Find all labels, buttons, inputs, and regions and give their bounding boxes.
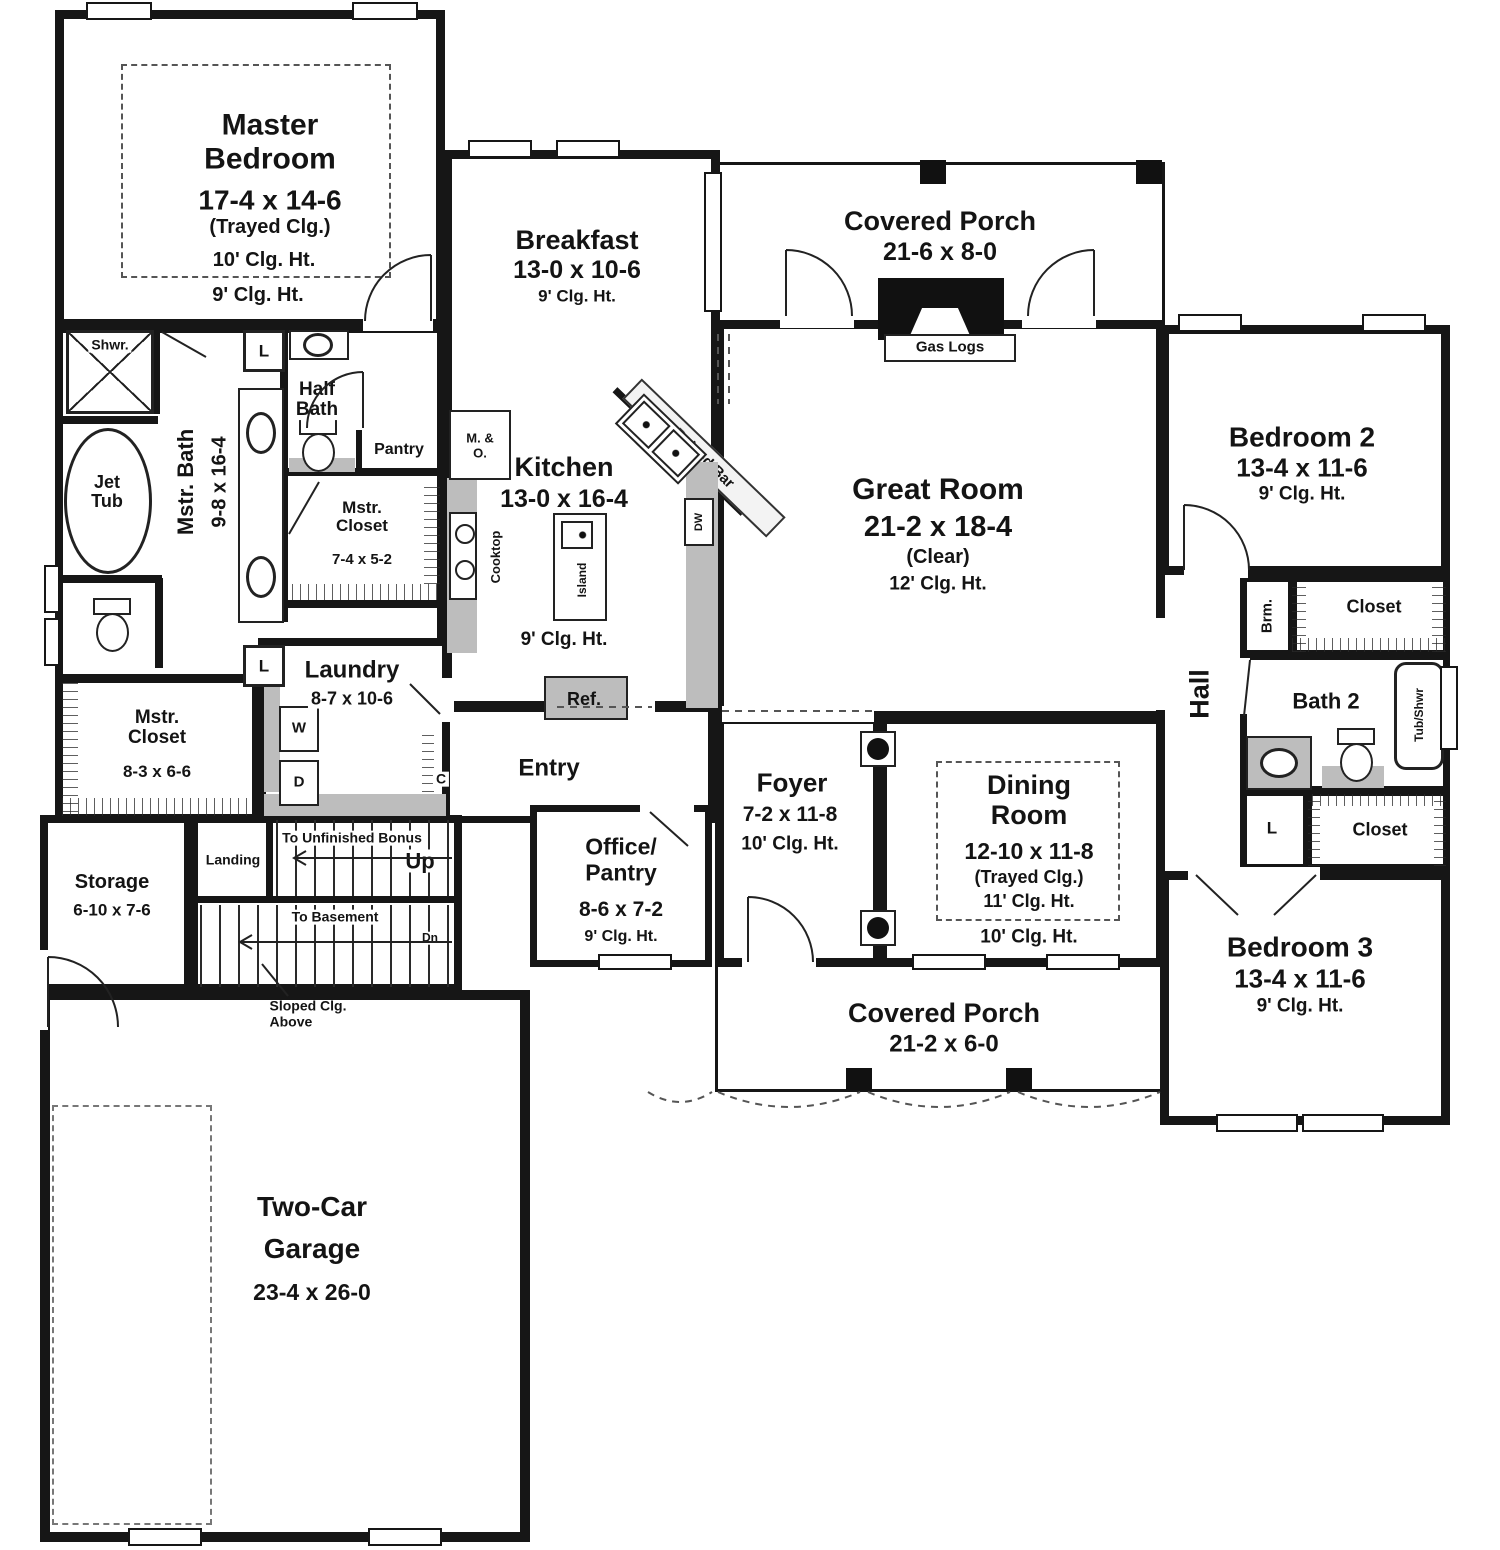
label-cooktop: Cooktop	[486, 531, 506, 584]
window	[556, 140, 620, 158]
window	[352, 2, 418, 20]
gap-office-door	[640, 800, 694, 814]
label-bed3-dims: 13-4 x 11-6	[1234, 964, 1366, 993]
window	[1302, 1114, 1384, 1132]
label-broom: Brm.	[1259, 599, 1276, 633]
label-great-name: Great Room	[852, 473, 1024, 507]
label-storage-name: Storage	[75, 871, 149, 893]
wall-pantry-left	[356, 426, 362, 474]
toilet-bowl	[1340, 743, 1373, 782]
label-master-dims: 17-4 x 14-6	[198, 184, 341, 215]
label-bed3-clg: 9' Clg. Ht.	[1257, 995, 1344, 1016]
column-dot	[867, 917, 889, 939]
gap-halfbath-door	[355, 370, 369, 430]
label-bed2-dims: 13-4 x 11-6	[1236, 453, 1368, 482]
hatch-closet-large-bottom	[62, 798, 254, 816]
window	[86, 2, 152, 20]
label-foyer-clg: 10' Clg. Ht.	[741, 833, 838, 854]
gap-bed3-door	[1188, 867, 1320, 881]
gap-bath2-door	[1236, 658, 1250, 714]
label-dining-tray: (Trayed Clg.)	[974, 867, 1083, 887]
toilet-bowl	[96, 613, 129, 652]
gap-porch-door-left	[780, 314, 854, 328]
label-dining-dims: 12-10 x 11-8	[964, 839, 1093, 865]
halfbath-toilet	[298, 418, 338, 472]
porch-scallop-1	[718, 1092, 860, 1107]
porch-post	[1006, 1068, 1032, 1090]
label-breakfast-dims: 13-0 x 10-6	[513, 256, 641, 284]
label-garage-dims: 23-4 x 26-0	[253, 1280, 371, 1306]
window	[128, 1528, 202, 1546]
label-closet-large-dims: 8-3 x 6-6	[120, 763, 194, 781]
label-master-bath-name: Mstr. Bath	[173, 429, 199, 535]
label-porch-front-name: Covered Porch	[848, 998, 1040, 1028]
label-dining-name: Dining Room	[987, 770, 1071, 830]
wall-closet-small-bottom	[285, 600, 445, 608]
label-jet-tub: Jet Tub	[88, 473, 126, 511]
label-porch-rear-dims: 21-6 x 8-0	[883, 238, 997, 266]
label-half-bath: Half Bath	[293, 380, 341, 420]
label-micro-oven: M. & O.	[466, 431, 493, 460]
gap-foyer-great	[722, 706, 874, 722]
porch-post	[920, 160, 946, 184]
label-sloped-clg: Sloped Clg. Above	[270, 998, 347, 1029]
window	[44, 618, 60, 666]
label-porch-rear-name: Covered Porch	[844, 206, 1036, 236]
label-closet-b2: Closet	[1343, 598, 1404, 617]
label-entry: Entry	[518, 756, 579, 783]
label-bath2: Bath 2	[1289, 689, 1362, 712]
window	[1216, 1114, 1298, 1132]
label-washer: W	[292, 721, 306, 738]
hatch-closet-b3-right	[1434, 796, 1446, 866]
label-foyer-dims: 7-2 x 11-8	[743, 803, 838, 827]
label-bed2-clg: 9' Clg. Ht.	[1259, 483, 1346, 504]
porch-front	[715, 965, 1165, 1092]
bath2-sink	[1260, 748, 1298, 778]
label-master-clg: 9' Clg. Ht.	[212, 284, 303, 306]
master-sink-2	[246, 556, 276, 598]
label-laundry-name: Laundry	[302, 657, 403, 682]
label-shower: Shwr.	[88, 338, 131, 353]
gap-storage-door	[34, 950, 48, 1030]
window	[1440, 666, 1458, 750]
label-bed3-name: Bedroom 3	[1227, 931, 1373, 962]
label-great-clg: 12' Clg. Ht.	[889, 573, 986, 594]
garage-bay-outline	[52, 1105, 212, 1525]
hatch-closet-large-left	[62, 682, 78, 812]
wall-wc-right	[155, 578, 163, 668]
label-porch-front-dims: 21-2 x 6-0	[889, 1032, 998, 1059]
gap-master-door	[363, 317, 433, 331]
window	[1362, 314, 1426, 332]
master-sink-1	[246, 412, 276, 454]
window	[368, 1528, 442, 1546]
label-office-clg: 9' Clg. Ht.	[584, 928, 657, 946]
label-landing: Landing	[203, 853, 263, 868]
label-great-dims: 21-2 x 18-4	[864, 511, 1012, 543]
wall-landing-divider	[266, 818, 273, 898]
bath2-toilet	[1336, 728, 1376, 782]
label-laundry-dims: 8-7 x 10-6	[308, 690, 396, 709]
master-toilet	[92, 598, 132, 652]
porch-scallop-2	[868, 1092, 1010, 1107]
window	[704, 172, 722, 312]
label-to-bonus: To Unfinished Bonus	[279, 831, 425, 846]
porch-post	[1136, 160, 1162, 184]
hatch-closet-b2-bottom	[1292, 638, 1446, 652]
floor-plan: Raised Bar Master Bedroom 17-4 x 14-6 (T…	[0, 0, 1500, 1550]
column-foyer-top	[860, 731, 896, 767]
label-breakfast-clg: 9' Clg. Ht.	[538, 286, 616, 305]
label-master-bath-dims: 9-8 x 16-4	[209, 436, 232, 527]
label-storage-dims: 6-10 x 7-6	[73, 900, 151, 919]
hatch-closet-small-right	[424, 480, 440, 584]
label-up: Up	[402, 849, 437, 872]
window	[912, 954, 986, 970]
gap-front-door	[742, 952, 816, 968]
gap-laundry-door	[442, 678, 454, 722]
porch-post	[846, 1068, 872, 1090]
halfbath-sink	[303, 333, 333, 357]
label-linen-bottom: L	[259, 656, 269, 675]
label-dishwasher: DW	[693, 513, 705, 531]
label-breakfast-name: Breakfast	[515, 225, 638, 255]
cooktop-burner-1	[455, 524, 475, 544]
label-gas-logs: Gas Logs	[916, 340, 984, 357]
label-to-basement: To Basement	[289, 910, 382, 925]
column-foyer-bottom	[860, 910, 896, 946]
label-closet-b3: Closet	[1349, 821, 1410, 840]
label-refrigerator: Ref.	[567, 689, 601, 709]
label-kitchen-name: Kitchen	[511, 453, 616, 481]
label-garage-name: Two-Car Garage	[257, 1186, 367, 1270]
hatch-closet-small-bottom	[292, 584, 438, 600]
label-down: Dn	[419, 932, 441, 945]
label-master-name: Master Bedroom	[204, 108, 336, 175]
toilet-bowl	[302, 433, 335, 472]
gap-porch-door-right	[1022, 314, 1096, 328]
label-coat-closet: C	[433, 772, 449, 787]
window	[468, 140, 532, 158]
label-master-tray: (Trayed Clg.)	[209, 216, 330, 238]
wall-wc-top	[62, 575, 162, 583]
window	[1046, 954, 1120, 970]
gap-bed2-door	[1184, 564, 1248, 578]
label-kitchen-clg: 9' Clg. Ht.	[518, 630, 611, 650]
wall-stairs-divider	[198, 896, 454, 903]
cooktop-burner-2	[455, 560, 475, 580]
window	[44, 565, 60, 613]
label-tub-shower: Tub/Shwr	[1412, 688, 1426, 742]
label-dining-clg: 10' Clg. Ht.	[980, 926, 1077, 947]
porch-scallop-4	[648, 1092, 712, 1102]
label-dryer: D	[294, 775, 305, 792]
label-bed2-name: Bedroom 2	[1229, 421, 1375, 452]
label-kitchen-dims: 13-0 x 16-4	[497, 486, 631, 512]
label-office-name: Office/ Pantry	[585, 834, 657, 886]
label-closet-small-name: Mstr. Closet	[333, 499, 391, 535]
label-linen-hall: L	[1267, 818, 1277, 837]
porch-scallop-3	[1018, 1092, 1160, 1107]
label-closet-small-dims: 7-4 x 5-2	[329, 552, 395, 568]
label-closet-large-name: Mstr. Closet	[125, 708, 189, 748]
label-office-dims: 8-6 x 7-2	[579, 898, 663, 922]
column-dot	[867, 738, 889, 760]
hatch-closet-b3-left	[1308, 796, 1320, 866]
wall-tub-top	[62, 416, 158, 424]
window	[598, 954, 672, 970]
label-master-clg-tray: 10' Clg. Ht.	[213, 249, 316, 271]
label-great-note: (Clear)	[906, 546, 969, 568]
island-sink	[561, 521, 593, 549]
label-hall: Hall	[1185, 669, 1216, 719]
label-island: Island	[575, 563, 589, 598]
label-pantry: Pantry	[374, 441, 424, 459]
hatch-closet-b3-top	[1312, 794, 1444, 806]
label-foyer-name: Foyer	[757, 768, 828, 797]
label-linen-top: L	[259, 341, 269, 360]
gap-hall-great	[1154, 618, 1168, 710]
label-dining-clg-tray: 11' Clg. Ht.	[983, 891, 1074, 911]
window	[1178, 314, 1242, 332]
